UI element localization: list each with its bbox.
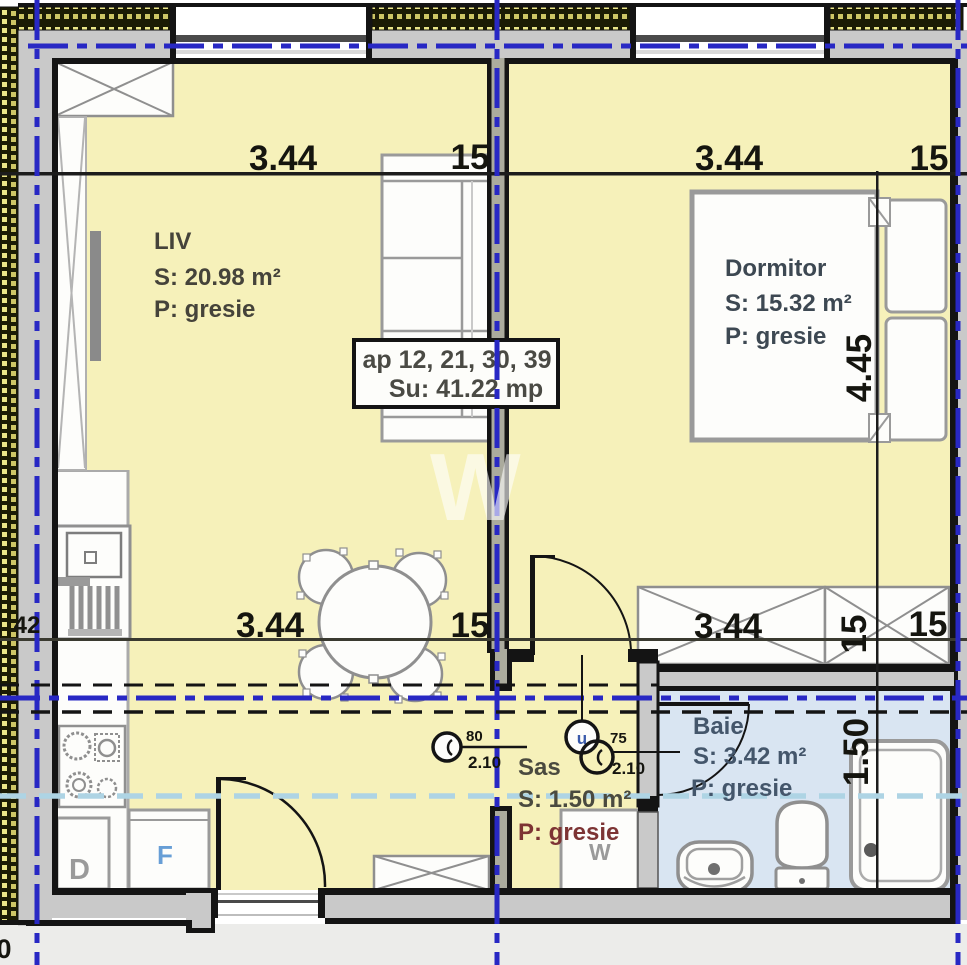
svg-text:42: 42 [14, 612, 41, 639]
svg-text:15: 15 [451, 606, 490, 645]
svg-text:3.44: 3.44 [694, 607, 763, 646]
svg-text:LIV: LIV [154, 228, 191, 255]
svg-text:F: F [157, 840, 173, 870]
svg-text:Sas: Sas [518, 754, 561, 781]
svg-text:4.45: 4.45 [840, 334, 879, 402]
svg-text:Su: 41.22 mp: Su: 41.22 mp [389, 375, 543, 403]
svg-text:S: 20.98 m²: S: 20.98 m² [154, 264, 281, 291]
svg-text:S: 3.42 m²: S: 3.42 m² [693, 743, 806, 770]
svg-text:S: 15.32 m²: S: 15.32 m² [725, 290, 852, 317]
svg-text:3.44: 3.44 [249, 139, 318, 178]
svg-text:0: 0 [0, 934, 12, 964]
svg-text:3.44: 3.44 [695, 139, 764, 178]
svg-text:80: 80 [466, 728, 483, 745]
svg-text:15: 15 [909, 605, 948, 644]
svg-text:P: gresie: P: gresie [691, 775, 792, 802]
svg-text:D: D [69, 854, 90, 886]
svg-text:75: 75 [610, 730, 627, 747]
svg-text:P: gresie: P: gresie [518, 819, 619, 846]
svg-text:W: W [430, 434, 521, 541]
svg-text:3.44: 3.44 [236, 606, 305, 645]
svg-text:ap 12, 21, 30, 39: ap 12, 21, 30, 39 [362, 346, 551, 374]
svg-text:15: 15 [451, 138, 490, 177]
svg-text:S: 1.50 m²: S: 1.50 m² [518, 786, 631, 813]
svg-text:2.10: 2.10 [468, 753, 501, 772]
svg-text:P: gresie: P: gresie [154, 296, 255, 323]
svg-text:Dormitor: Dormitor [725, 255, 826, 282]
svg-text:P: gresie: P: gresie [725, 323, 826, 350]
svg-text:15: 15 [835, 615, 874, 654]
svg-text:15: 15 [910, 139, 949, 178]
svg-text:1.50: 1.50 [837, 718, 876, 786]
svg-text:Baie: Baie [693, 713, 744, 740]
svg-text:2.10: 2.10 [612, 759, 645, 778]
